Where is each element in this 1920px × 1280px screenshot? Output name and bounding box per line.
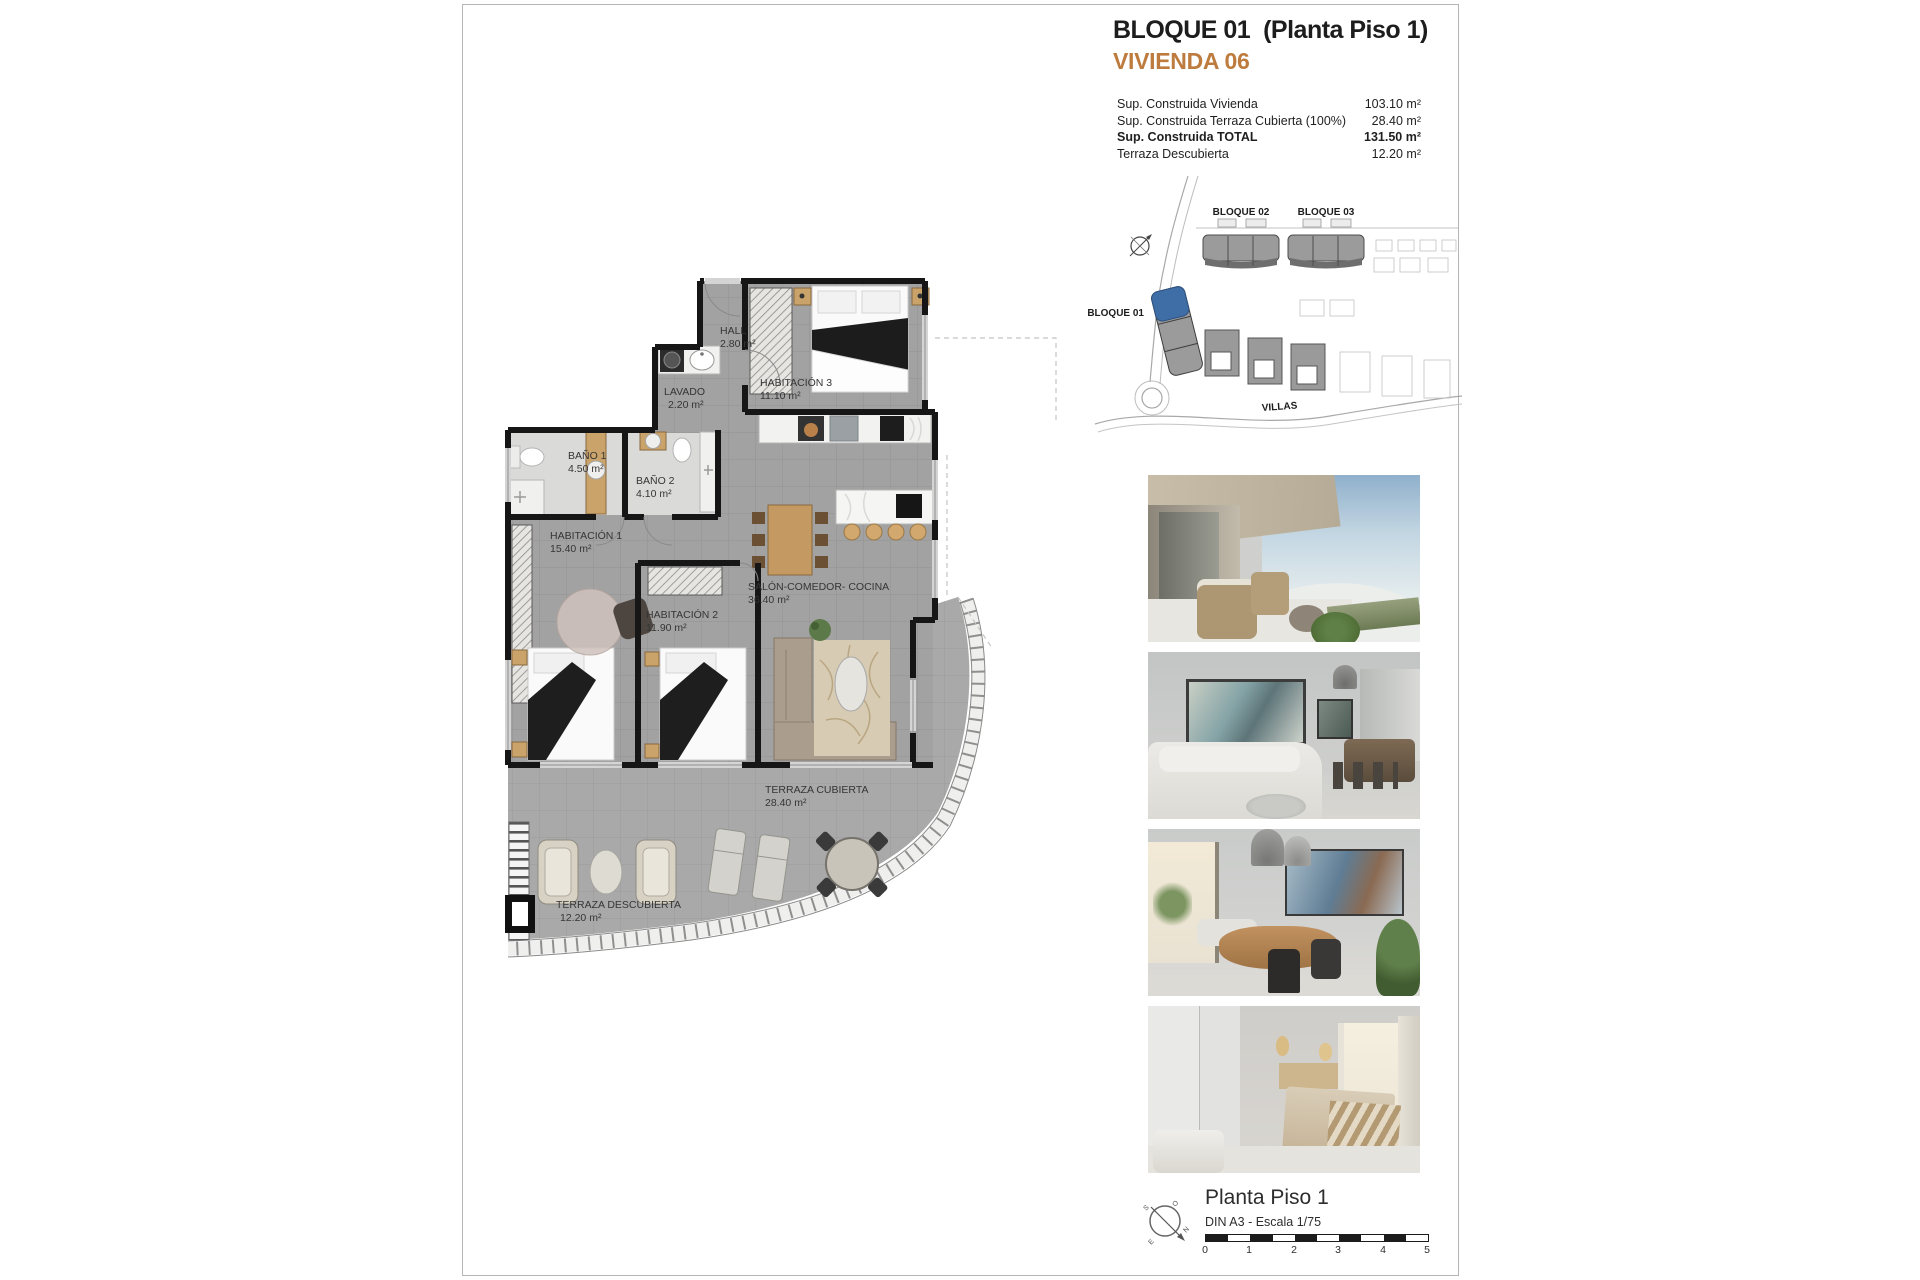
floor-plan: HALL 2.80 m² LAVADO 2.20 m² HABITACIÓN 3… xyxy=(0,0,1920,1280)
area-value: 12.20 m² xyxy=(1372,146,1421,163)
area-table: Sup. Construida Vivienda 103.10 m² Sup. … xyxy=(1117,96,1421,162)
area-label: Sup. Construida TOTAL xyxy=(1117,129,1258,146)
compass-letter-o: O xyxy=(1171,1199,1180,1208)
scale-tick: 1 xyxy=(1246,1244,1252,1256)
scale-tick: 5 xyxy=(1424,1244,1430,1256)
photo-palm xyxy=(1153,879,1191,929)
room-label-hab2: HABITACIÓN 2 xyxy=(646,608,718,621)
site-label-villas: VILLAS xyxy=(1261,401,1298,414)
room-area-terraza-cubierta: 28.40 m² xyxy=(765,797,807,809)
scale-tick: 3 xyxy=(1335,1244,1341,1256)
room-label-terraza-descubierta: TERRAZA DESCUBIERTA xyxy=(556,899,681,911)
photo-pendant-lamp xyxy=(1284,836,1311,866)
site-label-bloque02: BLOQUE 02 xyxy=(1213,207,1270,218)
terrace-column xyxy=(505,895,535,933)
photo-pendant-lamp xyxy=(1333,665,1357,688)
area-value: 103.10 m² xyxy=(1365,96,1421,113)
plant xyxy=(809,619,831,641)
room-area-hall: 2.80 m² xyxy=(720,338,756,350)
laundry-counter xyxy=(658,346,720,374)
scale-tick: 2 xyxy=(1291,1244,1297,1256)
footer-plan-name: Planta Piso 1 xyxy=(1205,1186,1329,1210)
site-bloque02-building xyxy=(1203,219,1279,269)
site-compass-icon xyxy=(1130,234,1152,256)
scale-tick: 4 xyxy=(1380,1244,1386,1256)
site-bloque03-building xyxy=(1288,219,1364,269)
photo-dining-chairs xyxy=(1333,762,1398,789)
photo-pendant-lamp xyxy=(1319,1043,1331,1061)
area-label: Sup. Construida Terraza Cubierta (100%) xyxy=(1117,113,1346,130)
photo-wicker-chair xyxy=(1251,572,1289,615)
room-label-bano1: BAÑO 1 xyxy=(568,449,607,462)
room-label-hab3: HABITACIÓN 3 xyxy=(760,376,832,389)
area-label: Sup. Construida Vivienda xyxy=(1117,96,1258,113)
unit-subtitle: VIVIENDA 06 xyxy=(1113,48,1429,75)
coffee-table xyxy=(835,657,867,711)
room-area-terraza-descubierta: 12.20 m² xyxy=(560,912,602,924)
site-bloque01-building xyxy=(1150,285,1204,377)
photo-wicker-sofa xyxy=(1197,579,1257,639)
compass-letter-s: S xyxy=(1142,1204,1150,1212)
site-villas xyxy=(1205,330,1325,390)
header: BLOQUE 01 (Planta Piso 1) VIVIENDA 06 xyxy=(1113,16,1429,75)
area-value: 28.40 m² xyxy=(1372,113,1421,130)
dining-table xyxy=(752,505,828,575)
bed-single-2 xyxy=(645,648,746,760)
room-area-hab2: 11.90 m² xyxy=(646,622,687,634)
room-area-salon: 36.40 m² xyxy=(748,594,790,606)
photo-artwork xyxy=(1186,679,1306,745)
table-row: Sup. Construida Vivienda 103.10 m² xyxy=(1117,96,1421,113)
site-plan: BLOQUE 02 BLOQUE 03 BLOQUE 01 VILLAS xyxy=(1087,176,1462,432)
compass-letter-e: E xyxy=(1147,1238,1155,1246)
room-area-hab3: 11.10 m² xyxy=(760,390,801,402)
rug-round xyxy=(557,589,623,655)
room-label-hall: HALL xyxy=(720,325,746,337)
compass-letter-n: N xyxy=(1182,1226,1191,1235)
photo-living-room xyxy=(1148,652,1420,819)
site-label-bloque01: BLOQUE 01 xyxy=(1087,308,1144,319)
photo-terrace xyxy=(1148,475,1420,642)
photo-sofa-cushions xyxy=(1159,746,1300,773)
footer-compass-icon: O S E N xyxy=(1138,1194,1198,1254)
area-label: Terraza Descubierta xyxy=(1117,146,1229,163)
plan-sheet-page: HALL 2.80 m² LAVADO 2.20 m² HABITACIÓN 3… xyxy=(0,0,1920,1280)
page-title: BLOQUE 01 (Planta Piso 1) xyxy=(1113,16,1429,45)
scale-bar xyxy=(1205,1234,1429,1242)
photo-pendant-lamp xyxy=(1251,829,1284,866)
plant-leaf xyxy=(811,622,819,630)
area-value: 131.50 m² xyxy=(1364,129,1421,146)
photo-plant xyxy=(1376,919,1420,996)
photo-plant xyxy=(1311,612,1360,642)
footer-scale-note: DIN A3 - Escala 1/75 xyxy=(1205,1215,1321,1229)
table-row: Terraza Descubierta 12.20 m² xyxy=(1117,146,1421,163)
table-row: Sup. Construida Terraza Cubierta (100%) … xyxy=(1117,113,1421,130)
photo-curtain xyxy=(1398,1016,1420,1160)
room-label-terraza-cubierta: TERRAZA CUBIERTA xyxy=(765,784,868,796)
photo-dining-room xyxy=(1148,829,1420,996)
photo-artwork-small xyxy=(1317,699,1354,740)
room-label-bano2: BAÑO 2 xyxy=(636,474,675,487)
room-label-hab1: HABITACIÓN 1 xyxy=(550,529,622,542)
photo-chair xyxy=(1311,939,1341,979)
photo-coffee-table xyxy=(1246,794,1306,819)
photo-chair xyxy=(1268,949,1301,992)
site-label-bloque03: BLOQUE 03 xyxy=(1298,207,1355,218)
kitchen-counter xyxy=(759,414,931,443)
room-area-lavado: 2.20 m² xyxy=(668,399,704,411)
room-area-bano1: 4.50 m² xyxy=(568,463,604,475)
room-label-salon: SALÓN-COMEDOR- COCINA xyxy=(748,580,889,593)
table-row-total: Sup. Construida TOTAL 131.50 m² xyxy=(1117,129,1421,146)
photo-bedroom xyxy=(1148,1006,1420,1173)
room-label-lavado: LAVADO xyxy=(664,386,705,398)
scale-tick: 0 xyxy=(1202,1244,1208,1256)
room-area-bano2: 4.10 m² xyxy=(636,488,672,500)
photo-headboard xyxy=(1279,1063,1339,1090)
room-area-hab1: 15.40 m² xyxy=(550,543,592,555)
photo-bench xyxy=(1153,1130,1224,1173)
